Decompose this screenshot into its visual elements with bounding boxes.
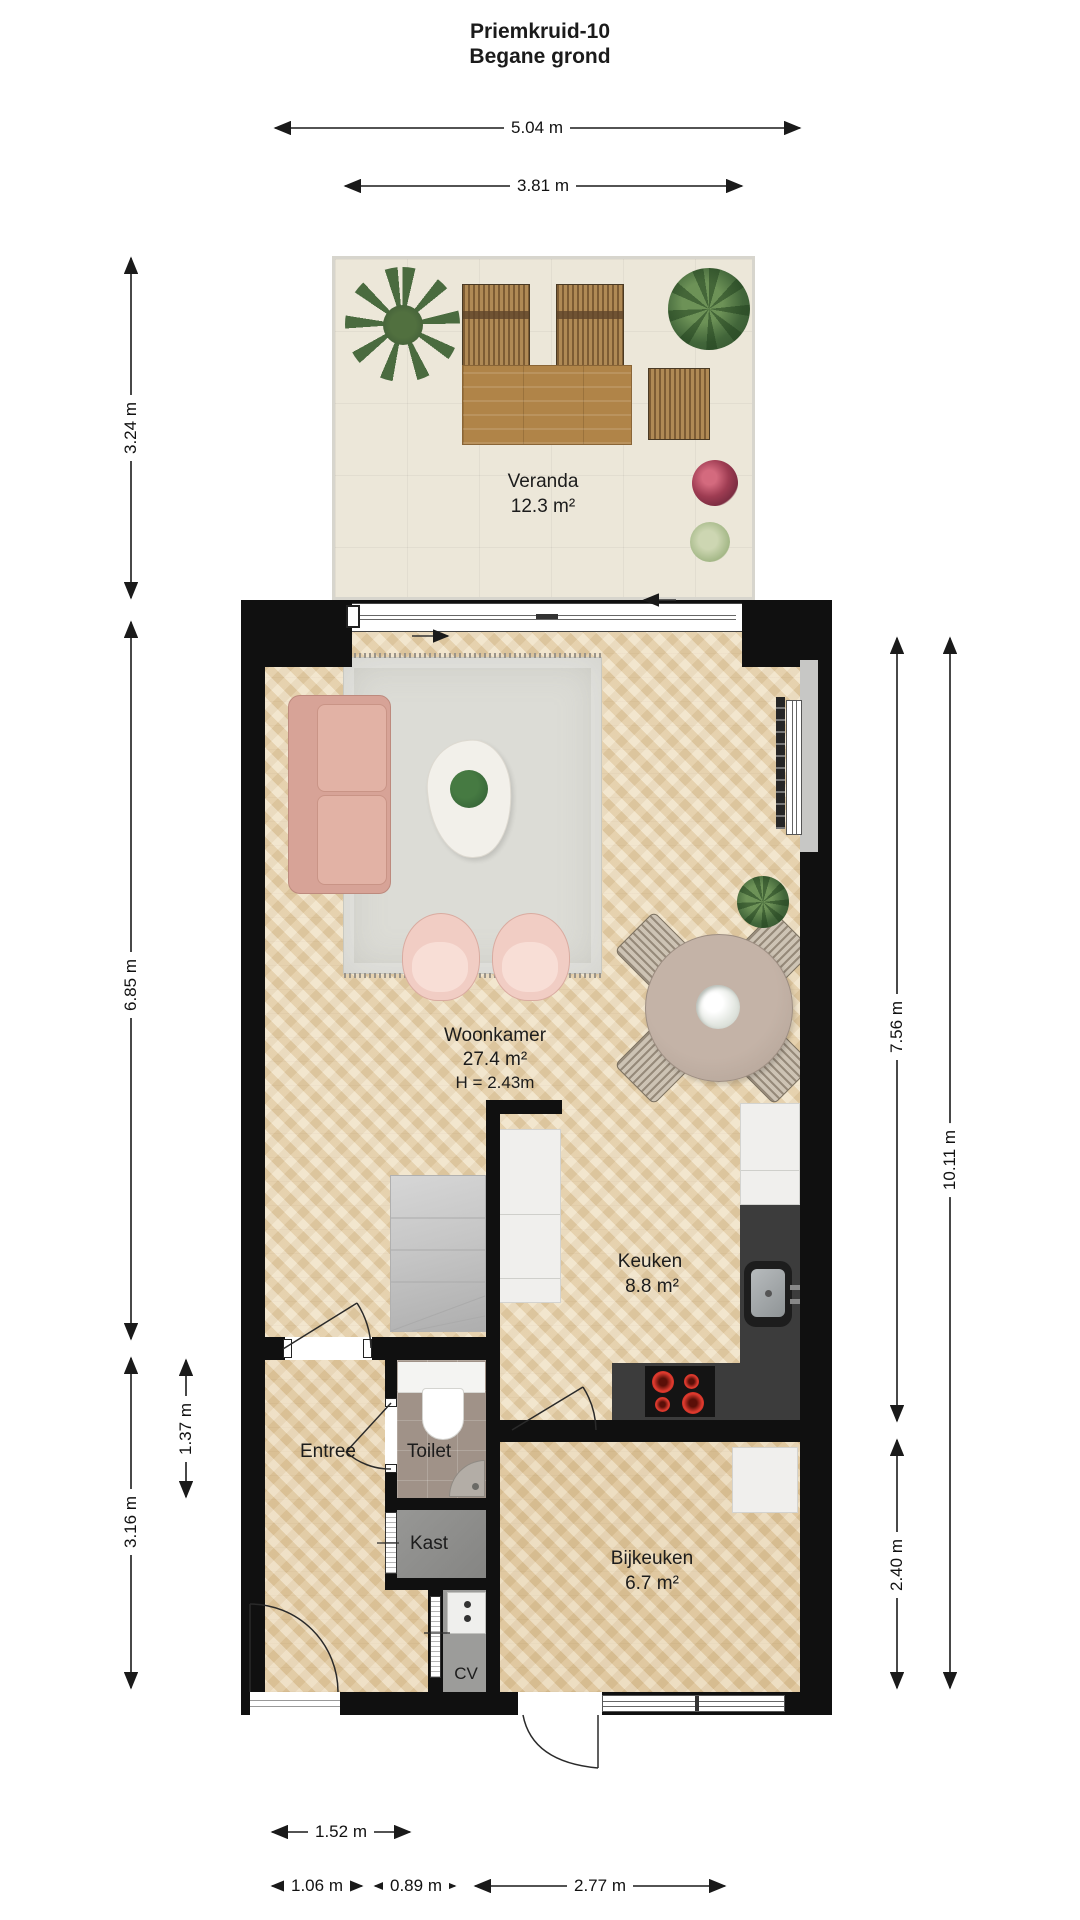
dim-label-bottom-entree: 1.52 m — [308, 1822, 374, 1842]
dim-label-top-total: 5.04 m — [504, 118, 570, 138]
backdoor-arc — [523, 1715, 598, 1768]
dim-label-right-lower: 2.40 m — [887, 1532, 907, 1598]
bijkeuken-door-leaf — [512, 1387, 583, 1430]
dim-label-bottom-mid: 0.89 m — [383, 1876, 449, 1896]
room-label-woonkamer: Woonkamer — [444, 1025, 546, 1047]
room-label-bijkeuken: Bijkeuken — [611, 1548, 693, 1570]
floor-plan: Priemkruid-10 Begane grond Veranda 12.3 … — [0, 0, 1080, 1920]
room-area-bijkeuken: 6.7 m² — [625, 1573, 679, 1595]
dim-label-top-veranda: 3.81 m — [510, 176, 576, 196]
dim-label-left-veranda: 3.24 m — [121, 395, 141, 461]
annotation-layer — [0, 0, 1080, 1920]
room-label-keuken: Keuken — [618, 1251, 682, 1273]
dim-label-bottom-left: 1.06 m — [284, 1876, 350, 1896]
dim-label-left-main: 6.85 m — [121, 952, 141, 1018]
room-height-woonkamer: H = 2.43m — [456, 1073, 535, 1093]
room-label-toilet: Toilet — [407, 1441, 451, 1463]
dim-label-bottom-right: 2.77 m — [567, 1876, 633, 1896]
room-area-woonkamer: 27.4 m² — [463, 1049, 527, 1071]
room-label-kast: Kast — [410, 1533, 448, 1555]
bijkeuken-door-arc — [583, 1387, 596, 1430]
room-label-cv: CV — [454, 1664, 478, 1684]
room-label-entree: Entree — [300, 1441, 356, 1463]
dim-label-left-toilet: 1.37 m — [176, 1396, 196, 1462]
hall-door-leaf — [283, 1303, 357, 1349]
dim-label-right-total: 10.11 m — [940, 1123, 960, 1197]
room-area-keuken: 8.8 m² — [625, 1276, 679, 1298]
front-door-arc — [250, 1604, 338, 1692]
hall-door-arc — [357, 1303, 371, 1348]
dim-label-left-lower: 3.16 m — [121, 1489, 141, 1555]
dim-label-right-upper: 7.56 m — [887, 994, 907, 1060]
stair-fan-line — [412, 1316, 485, 1331]
